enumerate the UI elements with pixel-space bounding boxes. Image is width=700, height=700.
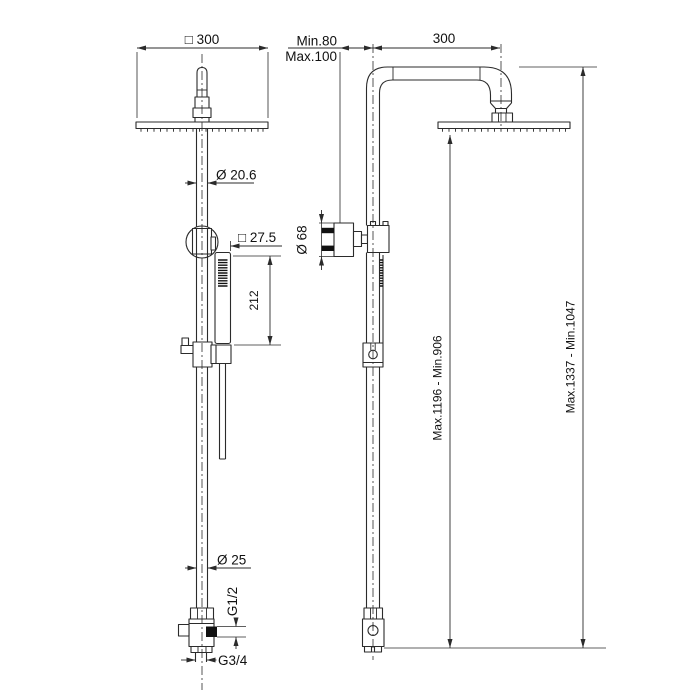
lever-arm xyxy=(181,346,194,354)
upper-pipe-diameter-label: Ø 20.6 xyxy=(216,168,257,183)
lower-pipe-diameter-label: Ø 25 xyxy=(217,553,246,568)
handshower-holder xyxy=(211,345,231,364)
handshower xyxy=(215,253,231,344)
height-overall-label: Max.1337 - Min.1047 xyxy=(564,300,578,413)
elbow-neck xyxy=(362,235,368,244)
head-width-label: □ 300 xyxy=(185,32,219,47)
pipe-clamp xyxy=(368,226,390,253)
shower-column-drawing: □ 300 Ø 20.6 xyxy=(0,0,700,700)
side-outlet-thread-label: G1/2 xyxy=(225,587,240,616)
arm-projection-label: 300 xyxy=(433,31,456,46)
foot-left xyxy=(365,647,372,653)
technical-drawing-page: □ 300 Ø 20.6 xyxy=(0,0,700,700)
wall-flange xyxy=(334,223,354,257)
bracket-block xyxy=(193,342,212,367)
wall-offset-max-label: Max.100 xyxy=(285,49,337,64)
lower-nut xyxy=(191,647,212,653)
head-plate xyxy=(438,122,570,129)
wand-body xyxy=(215,253,231,344)
foot-right xyxy=(375,647,382,653)
side-outlet-port xyxy=(206,627,217,638)
valve-handle xyxy=(179,625,190,637)
bottom-inlet-thread-label: G3/4 xyxy=(218,653,248,668)
elbow-step xyxy=(354,232,362,247)
handshower-length-label: 212 xyxy=(247,290,261,310)
drawing-background xyxy=(0,0,700,700)
holder-arm xyxy=(211,237,216,250)
height-to-headshower-label: Max.1196 - Min.906 xyxy=(431,335,445,440)
wall-stub-bottom xyxy=(322,246,335,251)
wall-stub-top xyxy=(322,228,335,233)
handshower-width-label: □ 27.5 xyxy=(238,230,276,245)
wall-offset-min-label: Min.80 xyxy=(296,34,337,49)
flange-diameter-label: Ø 68 xyxy=(295,225,310,254)
